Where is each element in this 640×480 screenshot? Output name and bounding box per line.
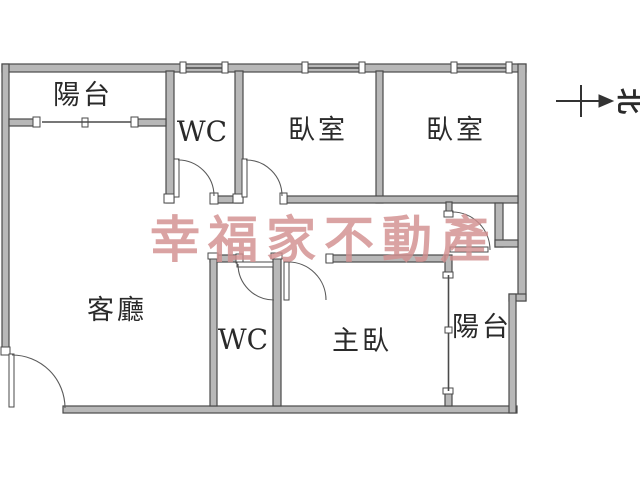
room-label-balcony-top: 陽台 (53, 80, 113, 111)
window-jamb (33, 117, 40, 127)
window-jamb (222, 62, 228, 73)
wall-balcony-top-sill-left (9, 119, 36, 126)
wall-niche-horizontal (495, 240, 518, 247)
north-compass: 北 (556, 85, 640, 117)
wall-top-exterior (2, 64, 526, 72)
room-label-wc-bottom: WC (218, 323, 268, 356)
room-label-living-room: 客廳 (87, 295, 147, 326)
floor-plan-canvas: 陽台 WC 臥室 臥室 客廳 WC 主臥 陽台 北 幸福家不動產 (0, 0, 640, 480)
door-leaf-wc-top (174, 159, 179, 197)
wall-wc-master-divider (273, 255, 281, 406)
door-arc-bedroom-1 (246, 160, 282, 196)
window-jamb (180, 62, 186, 73)
wall-balcony-top-sill-right (138, 119, 166, 126)
door-arc-wc-bottom (238, 264, 274, 300)
door-jamb (280, 193, 287, 204)
window-jamb (506, 62, 512, 73)
door-leaf-living-room (9, 354, 14, 407)
room-label-wc-top: WC (177, 115, 227, 148)
wall-left-exterior (2, 64, 9, 354)
window-jamb (131, 117, 138, 127)
wall-right-exterior-upper (518, 64, 526, 301)
window-jamb (451, 62, 457, 73)
agency-watermark: 幸福家不動產 (150, 211, 498, 269)
room-label-balcony-right: 陽台 (452, 312, 512, 343)
door-arc-wc-top (178, 160, 214, 196)
wall-bedroom-divider (376, 71, 383, 203)
north-arrow-icon (599, 95, 613, 107)
wall-bottom-exterior (63, 406, 517, 413)
room-label-master-bedroom: 主臥 (332, 326, 392, 357)
wall-wc-top-left (166, 71, 174, 203)
door-leaf-bedroom-1 (242, 159, 247, 197)
wall-wc-bottom-left (210, 255, 217, 406)
room-label-bedroom-2: 臥室 (426, 115, 486, 146)
door-arc-living-room (12, 355, 65, 408)
compass-north-label: 北 (613, 88, 640, 114)
window-jamb (359, 62, 365, 73)
wall-band-bottom-right (287, 196, 518, 203)
room-label-bedroom-1: 臥室 (288, 115, 348, 146)
window-jamb (302, 62, 308, 73)
sliding-door-center-tick (445, 327, 452, 333)
door-jamb (164, 194, 174, 203)
